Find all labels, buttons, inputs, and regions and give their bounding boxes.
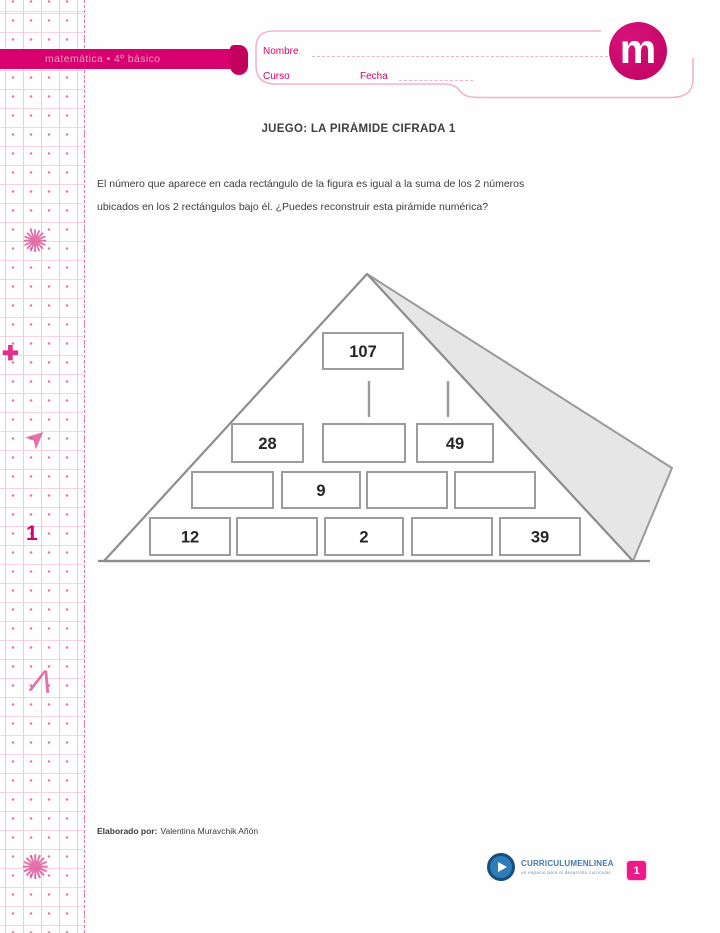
date-write-line	[399, 80, 473, 81]
pyramid-shaded-face	[367, 274, 672, 561]
pyramid-front-face	[104, 274, 633, 561]
unit-number: 1	[26, 522, 38, 546]
pyramid-box	[455, 472, 535, 508]
date-label: Fecha	[360, 71, 388, 82]
pyramid-value: 28	[258, 435, 276, 453]
instructions-line-1: El número que aparece en cada rectángulo…	[97, 178, 624, 190]
pyramid-figure: 1072849912239	[0, 0, 720, 933]
m-logo-letter: m	[620, 29, 656, 70]
instructions-line-2: ubicados en los 2 rectángulos bajo él. ¿…	[97, 201, 624, 213]
margin-divider	[84, 0, 85, 933]
pyramid-box	[323, 424, 405, 462]
credit-name: Valentina Muravchik Añón	[160, 826, 258, 836]
wheel-icon: ✺	[21, 851, 50, 885]
pyramid-box	[192, 472, 273, 508]
pyramid-box	[325, 518, 403, 555]
paper-plane-icon: ➤	[20, 422, 52, 455]
name-write-line	[312, 56, 608, 57]
pinwheel-icon: ✺	[22, 226, 48, 257]
name-label: Nombre	[263, 46, 299, 57]
worksheet-page: ✺ ✚ ➤ 1 Λ ✺ matemática • 4º básico Nombr…	[0, 0, 720, 933]
margin-grid: ✺ ✚ ➤ 1 Λ ✺	[0, 0, 85, 933]
pyramid-value: 12	[181, 529, 199, 547]
brand-logo: CURRICULUMENLINEA un espacio para el des…	[487, 853, 614, 881]
pyramid-box	[237, 518, 317, 555]
compass-icon: Λ	[29, 664, 54, 698]
subject-banner: matemática • 4º básico	[0, 49, 240, 69]
credit-line: Elaborado por:Valentina Muravchik Añón	[97, 826, 258, 836]
pyramid-value: 9	[316, 482, 325, 500]
course-label: Curso	[263, 71, 290, 82]
m-logo: m	[609, 22, 667, 80]
pyramid-box	[417, 424, 493, 462]
worksheet-title: JUEGO: LA PIRÁMIDE CIFRADA 1	[97, 123, 620, 135]
pyramid-value: 39	[531, 529, 549, 547]
pyramid-value: 107	[349, 343, 377, 361]
pyramid-value: 2	[359, 529, 368, 547]
pyramid-box	[412, 518, 492, 555]
pyramid-box	[500, 518, 580, 555]
plus-icon: ✚	[2, 344, 19, 364]
brand-name: CURRICULUMENLINEA	[521, 859, 614, 868]
pyramid-box	[232, 424, 303, 462]
brand-subtitle: un espacio para el desarrollo curricular	[521, 870, 614, 875]
subject-banner-label: matemática • 4º básico	[45, 53, 161, 65]
pyramid-box	[323, 333, 403, 369]
pyramid-box	[150, 518, 230, 555]
page-number-badge: 1	[627, 861, 646, 880]
play-circle-icon	[487, 853, 515, 881]
pyramid-box	[367, 472, 447, 508]
pyramid-box	[282, 472, 360, 508]
pyramid-value: 49	[446, 435, 464, 453]
credit-label: Elaborado por:	[97, 826, 157, 836]
